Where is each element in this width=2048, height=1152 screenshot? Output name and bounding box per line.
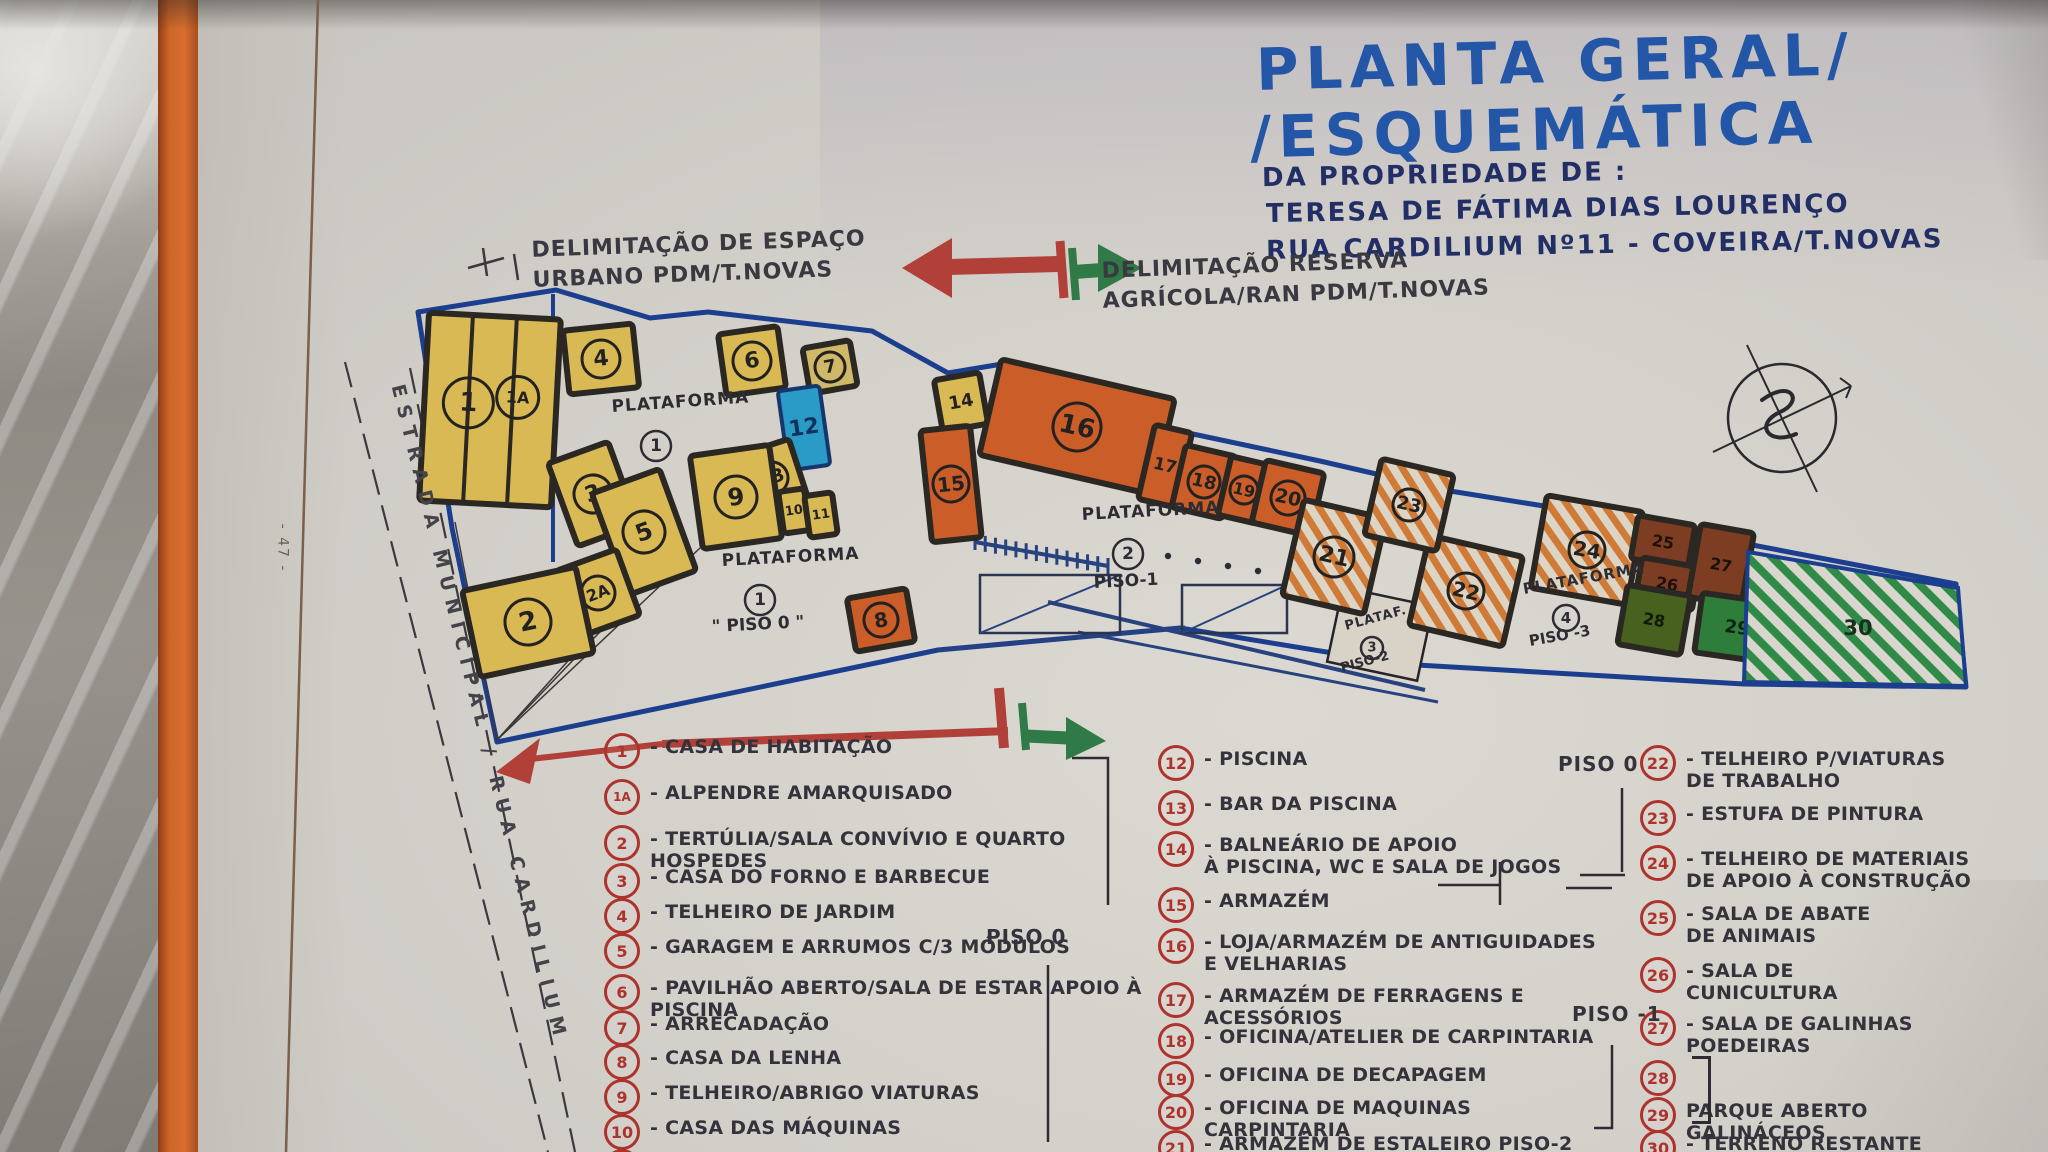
- legend-item-23: 23- ESTUFA DE PINTURA: [1640, 800, 1923, 836]
- building-23: 23: [1364, 459, 1454, 552]
- legend-item-26: 26- SALA DE CUNICULTURA: [1640, 957, 1838, 1005]
- legend-item-22-number: 22: [1640, 745, 1676, 781]
- legend-piso0-col2-label: PISO 0: [986, 925, 1066, 949]
- building-28: 28: [1617, 585, 1690, 655]
- legend-item-10: 10- CASA DAS MÁQUINAS: [604, 1114, 901, 1150]
- legend-piso-minus1-label: PISO -1: [1572, 1002, 1662, 1026]
- legend-item-30: 30- TERRENO RESTANTE: [1640, 1130, 1922, 1152]
- legend-item-5-number: 5: [604, 933, 640, 969]
- legend-item-30-number: 30: [1640, 1130, 1676, 1152]
- building-15: 15: [920, 426, 981, 543]
- building-28-number: 28: [1641, 609, 1666, 632]
- platform-number: 1: [754, 590, 766, 610]
- legend-item-14-label: - BALNEÁRIO DE APOIO À PISCINA, WC E SAL…: [1204, 831, 1561, 879]
- legend-item-15: 15- ARMAZÉM: [1158, 887, 1330, 923]
- legend-item-15-label: - ARMAZÉM: [1204, 887, 1330, 912]
- legend-piso0-col3-label: PISO 0: [1558, 752, 1638, 776]
- legend-item-8-number: 8: [604, 1044, 640, 1080]
- legend-item-9: 9- TELHEIRO/ABRIGO VIATURAS: [604, 1079, 980, 1115]
- building-1: 11A: [419, 313, 561, 508]
- legend-item-22-label: - TELHEIRO P/VIATURAS DE TRABALHO: [1686, 745, 1945, 793]
- legend-item-4-label: - TELHEIRO DE JARDIM: [650, 898, 895, 923]
- legend-item-14-number: 14: [1158, 831, 1194, 867]
- platform-piso: " PISO 0 ": [711, 612, 805, 637]
- legend-item-1A-number: 1A: [604, 779, 640, 815]
- legend-item-1: 1- CASA DE HABITAÇÃO: [604, 733, 892, 769]
- legend-item-1A-label: - ALPENDRE AMARQUISADO: [650, 779, 953, 804]
- legend-item-14: 14- BALNEÁRIO DE APOIO À PISCINA, WC E S…: [1158, 831, 1561, 879]
- page-number: - 47 -: [274, 524, 290, 573]
- legend-item-1-label: - CASA DE HABITAÇÃO: [650, 733, 892, 758]
- legend-item-3: 3- CASA DO FORNO E BARBECUE: [604, 863, 990, 899]
- legend-item-13-label: - BAR DA PISCINA: [1204, 790, 1397, 815]
- building-12-number: 12: [787, 413, 821, 442]
- legend-item-27: 27- SALA DE GALINHAS POEDEIRAS: [1640, 1010, 1913, 1058]
- legend-item-1A: 1A- ALPENDRE AMARQUISADO: [604, 779, 953, 815]
- legend-item-19-label: - OFICINA DE DECAPAGEM: [1204, 1061, 1487, 1086]
- legend-item-15-number: 15: [1158, 887, 1194, 923]
- legend-item-12-number: 12: [1158, 745, 1194, 781]
- legend-item-21: 21- ARMAZÉM DE ESTALEIRO PISO-2: [1158, 1130, 1572, 1152]
- legend-item-23-label: - ESTUFA DE PINTURA: [1686, 800, 1923, 825]
- legend-item-18-label: - OFICINA/ATELIER DE CARPINTARIA: [1204, 1023, 1594, 1048]
- building-27-number: 27: [1708, 554, 1733, 577]
- legend-item-26-number: 26: [1640, 957, 1676, 993]
- legend-item-24-number: 24: [1640, 845, 1676, 881]
- legend-item-9-number: 9: [604, 1079, 640, 1115]
- building-4: 4: [563, 324, 639, 395]
- legend-item-24: 24- TELHEIRO DE MATERIAIS DE APOIO À CON…: [1640, 845, 1971, 893]
- legend-item-6-number: 6: [604, 974, 640, 1010]
- legend-item-13-number: 13: [1158, 790, 1194, 826]
- legend-item-12: 12- PISCINA: [1158, 745, 1308, 781]
- urban-delimitation-label: DELIMITAÇÃO DE ESPAÇO URBANO PDM/T.NOVAS: [531, 224, 867, 295]
- building-14: 14: [934, 372, 988, 431]
- legend-item-29-number: 29: [1640, 1097, 1676, 1133]
- legend-item-24-label: - TELHEIRO DE MATERIAIS DE APOIO À CONST…: [1686, 845, 1971, 893]
- building-24-number: 24: [1571, 536, 1603, 564]
- legend-item-23-number: 23: [1640, 800, 1676, 836]
- building-10-number: 10: [784, 502, 804, 519]
- legend-item-8: 8- CASA DA LENHA: [604, 1044, 841, 1080]
- legend-item-7-label: - ARRECADAÇÃO: [650, 1010, 829, 1035]
- legend-item-4: 4- TELHEIRO DE JARDIM: [604, 898, 895, 934]
- building-8: 8: [847, 588, 915, 652]
- legend-item-16: 16- LOJA/ARMAZÉM DE ANTIGUIDADES E VELHA…: [1158, 928, 1596, 976]
- platform-piso: PISO -3: [1528, 621, 1592, 649]
- building-30-number: 30: [1843, 616, 1872, 640]
- building-6: 6: [718, 326, 786, 396]
- legend-item-7: 7- ARRECADAÇÃO: [604, 1010, 829, 1046]
- platform-number: 2: [1122, 544, 1134, 564]
- platform-label-2: PLATAFORMA2PISO-1: [1081, 498, 1220, 593]
- legend-item-3-number: 3: [604, 863, 640, 899]
- legend-item-19: 19- OFICINA DE DECAPAGEM: [1158, 1061, 1487, 1097]
- legend-item-12-label: - PISCINA: [1204, 745, 1308, 770]
- legend-item-18: 18- OFICINA/ATELIER DE CARPINTARIA: [1158, 1023, 1594, 1059]
- compass-north-symbol: [1713, 345, 1851, 492]
- legend-item-16-label: - LOJA/ARMAZÉM DE ANTIGUIDADES E VELHARI…: [1204, 928, 1596, 976]
- legend-item-16-number: 16: [1158, 928, 1194, 964]
- legend-item-10-label: - CASA DAS MÁQUINAS: [650, 1114, 901, 1139]
- building-11: 11: [804, 492, 838, 537]
- legend-item-19-number: 19: [1158, 1061, 1194, 1097]
- legend-item-3-label: - CASA DO FORNO E BARBECUE: [650, 863, 990, 888]
- building-11-number: 11: [811, 506, 831, 523]
- legend-item-25-number: 25: [1640, 900, 1676, 936]
- legend-item-25-label: - SALA DE ABATE DE ANIMAIS: [1686, 900, 1871, 948]
- platform-label-1: PLATAFORMA1" PISO 0 ": [711, 544, 860, 637]
- legend-item-10-number: 10: [604, 1114, 640, 1150]
- legend-item-18-number: 18: [1158, 1023, 1194, 1059]
- legend-item-26-label: - SALA DE CUNICULTURA: [1686, 957, 1838, 1005]
- legend-item-25: 25- SALA DE ABATE DE ANIMAIS: [1640, 900, 1871, 948]
- building-14-number: 14: [947, 389, 975, 414]
- plan-subtitle-owner-intro: DA PROPRIEDADE DE :: [1262, 157, 1628, 193]
- legend-item-8-label: - CASA DA LENHA: [650, 1044, 841, 1069]
- building-1-number: 1: [459, 387, 479, 418]
- legend-item-21-label: - ARMAZÉM DE ESTALEIRO PISO-2: [1204, 1130, 1572, 1152]
- legend-item-7-number: 7: [604, 1010, 640, 1046]
- platform-name: PLATAFORMA: [721, 544, 860, 571]
- legend-item-4-number: 4: [604, 898, 640, 934]
- building-25-number: 25: [1650, 531, 1675, 554]
- legend-item-22: 22- TELHEIRO P/VIATURAS DE TRABALHO: [1640, 745, 1945, 793]
- building-22: 22: [1409, 535, 1523, 646]
- building-4-number: 4: [592, 346, 610, 372]
- legend-item-20-number: 20: [1158, 1094, 1194, 1130]
- platform-piso: PISO-1: [1093, 570, 1159, 593]
- legend-item-1-number: 1: [604, 733, 640, 769]
- legend-bracket-28-29: [1692, 1056, 1711, 1124]
- legend-item-2-number: 2: [604, 825, 640, 861]
- legend-item-30-label: - TERRENO RESTANTE: [1686, 1130, 1922, 1152]
- legend-item-28-number: 28: [1640, 1060, 1676, 1096]
- building-2: 2: [462, 567, 594, 677]
- building-30: 30: [1744, 552, 1966, 686]
- platform-name: PLATAFORMA: [611, 387, 750, 417]
- legend-item-28: 28: [1640, 1060, 1686, 1096]
- legend-item-17-number: 17: [1158, 982, 1194, 1018]
- building-9: 9: [690, 445, 782, 549]
- paper-crease-line: [286, 0, 318, 1152]
- platform-name: PLATAFORMA: [1081, 498, 1220, 525]
- building-1-number: 1A: [505, 387, 530, 407]
- legend-item-13: 13- BAR DA PISCINA: [1158, 790, 1397, 826]
- building-15-number: 15: [936, 471, 966, 498]
- platform-number: 1: [650, 436, 662, 456]
- legend-item-9-label: - TELHEIRO/ABRIGO VIATURAS: [650, 1079, 980, 1104]
- legend-item-27-label: - SALA DE GALINHAS POEDEIRAS: [1686, 1010, 1913, 1058]
- legend-item-21-number: 21: [1158, 1130, 1194, 1152]
